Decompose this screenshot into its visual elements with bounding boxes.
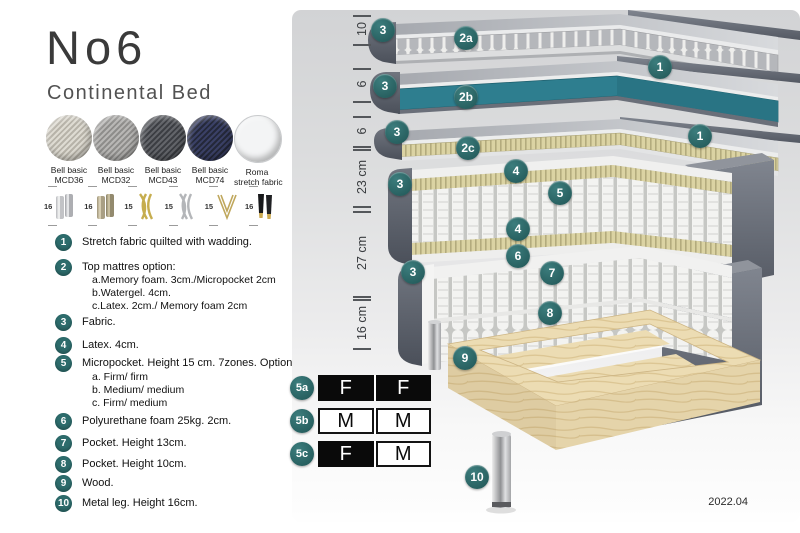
callout-8: 8 bbox=[538, 301, 562, 325]
feature-item-6: 6 Polyurethane foam 25kg. 2cm. bbox=[55, 413, 231, 430]
firmness-cell: F bbox=[318, 375, 374, 401]
callout-2a: 2a bbox=[454, 26, 478, 50]
firmness-cell: M bbox=[318, 408, 374, 434]
callout-4: 4 bbox=[506, 217, 530, 241]
feature-number-badge: 1 bbox=[55, 234, 72, 251]
callout-3: 3 bbox=[373, 74, 397, 98]
callout-5: 5 bbox=[548, 181, 572, 205]
feature-subitem: c. Firm/ medium bbox=[92, 397, 167, 409]
feature-item-8: 8 Pocket. Height 10cm. bbox=[55, 456, 187, 473]
feature-text: Pocket. Height 10cm. bbox=[82, 456, 187, 473]
feature-number-badge: 4 bbox=[55, 337, 72, 354]
firmness-badge: 5a bbox=[290, 376, 314, 400]
feature-item-1: 1 Stretch fabric quilted with wadding. bbox=[55, 234, 252, 251]
front-metal-leg bbox=[492, 434, 511, 508]
feature-subitem: c.Latex. 2cm./ Memory foam 2cm bbox=[92, 300, 247, 312]
feature-item-4: 4 Latex. 4cm. bbox=[55, 337, 139, 354]
feature-item-9: 9 Wood. bbox=[55, 475, 114, 492]
feature-number-badge: 3 bbox=[55, 314, 72, 331]
callout-3: 3 bbox=[385, 120, 409, 144]
callout-6: 6 bbox=[506, 244, 530, 268]
exploded-bed-diagram: 10 6 6 23 cm 27 cm 16 cm 3 2a 1 3 2b 1 3… bbox=[292, 10, 800, 522]
dimension-tick bbox=[353, 211, 371, 213]
feature-number-badge: 9 bbox=[55, 475, 72, 492]
feature-text: Pocket. Height 13cm. bbox=[82, 435, 187, 452]
feature-number-badge: 5 bbox=[55, 355, 72, 372]
info-panel: No6 Continental Bed Bell basic MCD36 Bel… bbox=[0, 0, 300, 533]
firmness-bar: F F bbox=[318, 375, 431, 401]
callout-2c: 2c bbox=[456, 136, 480, 160]
feature-text: Metal leg. Height 16cm. bbox=[82, 495, 198, 512]
feature-number-badge: 6 bbox=[55, 413, 72, 430]
firmness-cell: M bbox=[376, 408, 432, 434]
callout-10: 10 bbox=[465, 465, 489, 489]
feature-text: Micropocket. Height 15 cm. 7zones. Optio… bbox=[82, 355, 295, 372]
firmness-cell: F bbox=[318, 441, 374, 467]
feature-item-10: 10 Metal leg. Height 16cm. bbox=[55, 495, 198, 512]
feature-text: Stretch fabric quilted with wadding. bbox=[82, 234, 252, 251]
feature-text: Fabric. bbox=[82, 314, 116, 331]
back-metal-leg bbox=[428, 322, 441, 370]
feature-list: 1 Stretch fabric quilted with wadding. 2… bbox=[0, 0, 300, 533]
callout-1: 1 bbox=[648, 55, 672, 79]
feature-number-badge: 8 bbox=[55, 456, 72, 473]
dimension-label-16cm: 16 cm bbox=[355, 293, 369, 353]
callout-4: 4 bbox=[504, 159, 528, 183]
firmness-badge: 5b bbox=[290, 409, 314, 433]
firmness-cell: F bbox=[376, 375, 432, 401]
callout-2b: 2b bbox=[454, 85, 478, 109]
feature-number-badge: 10 bbox=[55, 495, 72, 512]
callout-3: 3 bbox=[401, 260, 425, 284]
callout-9: 9 bbox=[453, 346, 477, 370]
firmness-row-5a: 5a F F bbox=[290, 375, 431, 401]
firmness-badge: 5c bbox=[290, 442, 314, 466]
version-label: 2022.04 bbox=[708, 496, 748, 508]
firmness-bar: M M bbox=[318, 408, 431, 434]
feature-item-3: 3 Fabric. bbox=[55, 314, 116, 331]
firmness-row-5b: 5b M M bbox=[290, 408, 431, 434]
feature-number-badge: 2 bbox=[55, 259, 72, 276]
feature-subitem: b.Watergel. 4cm. bbox=[92, 287, 171, 299]
callout-3: 3 bbox=[371, 18, 395, 42]
feature-subitem: a. Firm/ firm bbox=[92, 371, 148, 383]
dimension-label-27cm: 27 cm bbox=[355, 223, 369, 283]
feature-item-5: 5 Micropocket. Height 15 cm. 7zones. Opt… bbox=[55, 355, 295, 372]
callout-1: 1 bbox=[688, 124, 712, 148]
feature-number-badge: 7 bbox=[55, 435, 72, 452]
feature-subitem: a.Memory foam. 3cm./Micropocket 2cm bbox=[92, 274, 276, 286]
dimension-label-10: 10 bbox=[355, 0, 369, 59]
callout-3: 3 bbox=[388, 172, 412, 196]
firmness-cell: M bbox=[376, 441, 432, 467]
callout-7: 7 bbox=[540, 261, 564, 285]
feature-item-7: 7 Pocket. Height 13cm. bbox=[55, 435, 187, 452]
product-sheet: No6 Continental Bed Bell basic MCD36 Bel… bbox=[0, 0, 800, 533]
feature-text: Latex. 4cm. bbox=[82, 337, 139, 354]
firmness-bar: F M bbox=[318, 441, 431, 467]
feature-subitem: b. Medium/ medium bbox=[92, 384, 184, 396]
firmness-row-5c: 5c F M bbox=[290, 441, 431, 467]
dimension-label-23cm: 23 cm bbox=[355, 147, 369, 207]
feature-text: Wood. bbox=[82, 475, 114, 492]
feature-text: Polyurethane foam 25kg. 2cm. bbox=[82, 413, 231, 430]
